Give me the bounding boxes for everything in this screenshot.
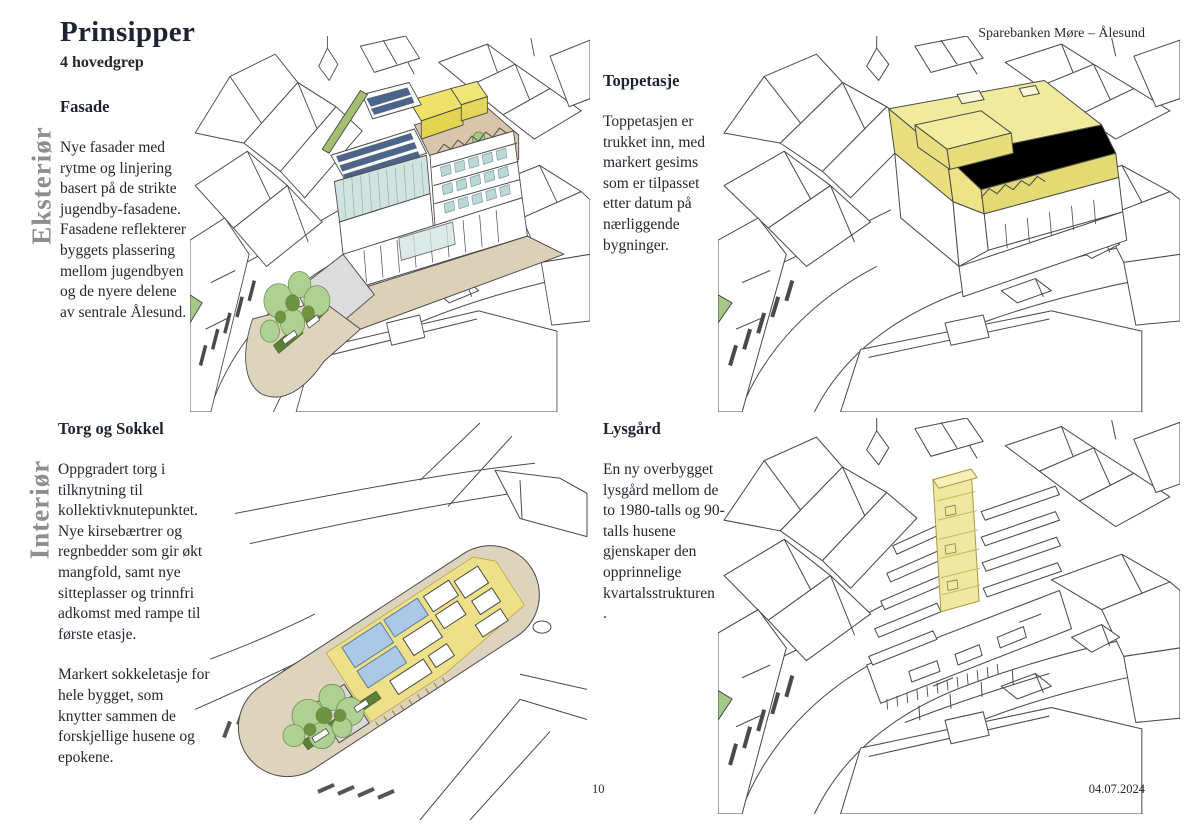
illustration-fasade	[190, 36, 590, 412]
section-lysgard-text: Lysgård En ny overbygget lysgård mellom …	[603, 418, 725, 625]
section-fasade-heading: Fasade	[60, 96, 194, 118]
side-label-interior: Interiør	[25, 430, 56, 590]
page-number: 10	[592, 782, 605, 797]
illustration-toppetasje	[718, 36, 1180, 412]
section-torg-paragraph-2: Markert sokkeletasje for hele bygget, so…	[58, 665, 210, 768]
section-fasade-paragraph: Nye fasader med rytme og linjering baser…	[60, 138, 194, 323]
date: 04.07.2024	[1089, 782, 1145, 797]
section-lysgard-period: .	[603, 604, 725, 625]
section-torg-paragraph-1: Oppgradert torg i tilknytning til kollek…	[58, 460, 210, 645]
section-fasade-text: Fasade Nye fasader med rytme og linjerin…	[60, 96, 194, 323]
side-label-eksterior: Eksteriør	[27, 106, 58, 266]
section-toppetasje-heading: Toppetasje	[603, 70, 715, 92]
page-subtitle: 4 hovedgrep	[60, 54, 144, 72]
section-lysgard-paragraph: En ny overbygget lysgård mellom de to 19…	[603, 460, 725, 604]
section-lysgard-heading: Lysgård	[603, 418, 725, 440]
bl-block	[220, 527, 559, 796]
page-title: Prinsipper	[60, 16, 195, 49]
presentation-page: Prinsipper 4 hovedgrep Sparebanken Møre …	[0, 0, 1200, 828]
illustration-lysgard	[718, 418, 1180, 814]
section-toppetasje-paragraph: Toppetasjen er trukket inn, med markert …	[603, 112, 715, 256]
section-torg-text: Torg og Sokkel Oppgradert torg i tilknyt…	[58, 418, 210, 768]
section-torg-heading: Torg og Sokkel	[58, 418, 210, 440]
illustration-torg-og-sokkel	[190, 418, 590, 820]
section-toppetasje-text: Toppetasje Toppetasjen er trukket inn, m…	[603, 70, 715, 256]
